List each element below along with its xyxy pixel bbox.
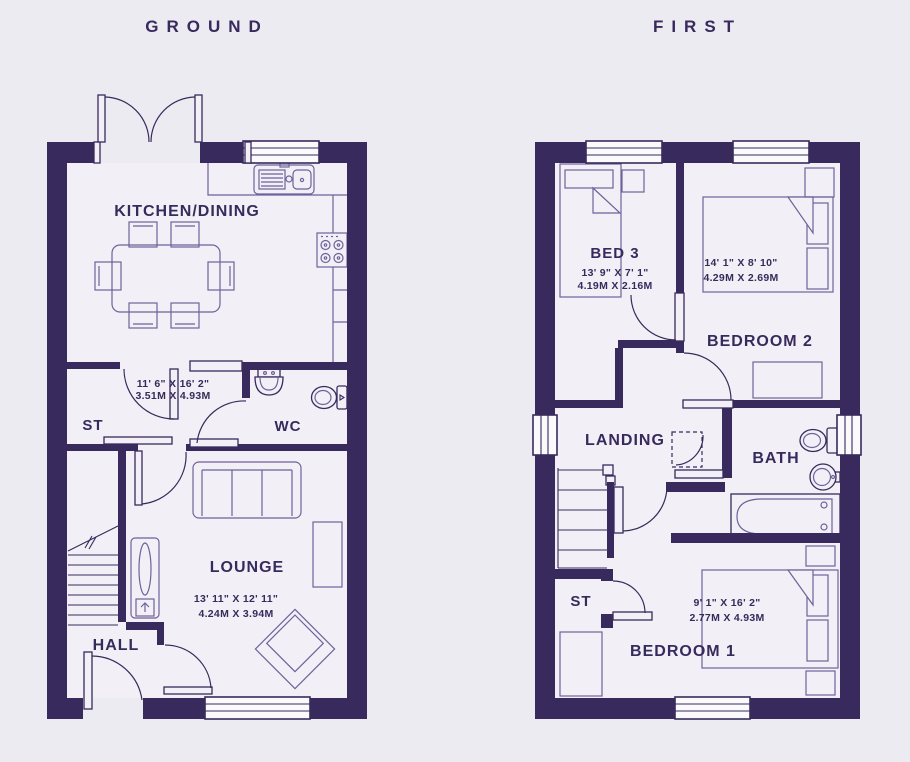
room-label-bath: BATH [752,450,799,467]
room-dims-imperial-bedroom1: 9' 1" X 16' 2" [693,597,760,609]
toilet [800,428,839,453]
room-dims-imperial-kitchen-dining: 11' 6" X 16' 2" [137,378,210,390]
window [533,415,557,455]
toilet [312,386,348,409]
room-dims-metric-kitchen-dining: 3.51M X 4.93M [135,390,210,402]
window [733,141,809,163]
bathtub [731,494,840,538]
room-label-bedroom1: BEDROOM 1 [630,643,736,660]
room-label-kitchen-dining: KITCHEN/DINING [114,203,260,220]
room-dims-imperial-bedroom2: 14' 1" X 8' 10" [704,257,777,269]
room-label-wc: WC [275,418,302,435]
window [586,141,662,163]
ground-floor-plan: KITCHEN/DINING 11' 6" X 16' 2" 3.51M X 4… [47,95,367,719]
window [837,415,861,455]
room-dims-imperial-lounge: 13' 11" X 12' 11" [194,593,278,605]
room-dims-metric-bed3: 4.19M X 2.16M [577,280,652,292]
window [675,697,750,719]
room-label-bedroom2: BEDROOM 2 [707,333,813,350]
window [205,697,310,719]
first-floor-plan: BED 3 13' 9" X 7' 1" 4.19M X 2.16M BEDRO… [533,141,861,719]
room-label-st-ground: ST [82,417,103,434]
window [243,141,319,163]
room-label-hall: HALL [93,637,140,654]
room-label-landing: LANDING [585,432,665,449]
room-dims-imperial-bed3: 13' 9" X 7' 1" [581,267,648,279]
floorplan-drawing: KITCHEN/DINING 11' 6" X 16' 2" 3.51M X 4… [0,0,910,762]
room-label-st-first: ST [570,593,591,610]
hob [317,233,347,267]
room-dims-metric-bedroom2: 4.29M X 2.69M [703,272,778,284]
room-dims-metric-bedroom1: 2.77M X 4.93M [689,612,764,624]
room-label-bed3: BED 3 [590,245,639,262]
room-label-lounge: LOUNGE [210,559,284,576]
wash-basin [255,369,283,395]
floorplan-page: GROUND FIRST [0,0,910,762]
room-dims-metric-lounge: 4.24M X 3.94M [198,608,273,620]
